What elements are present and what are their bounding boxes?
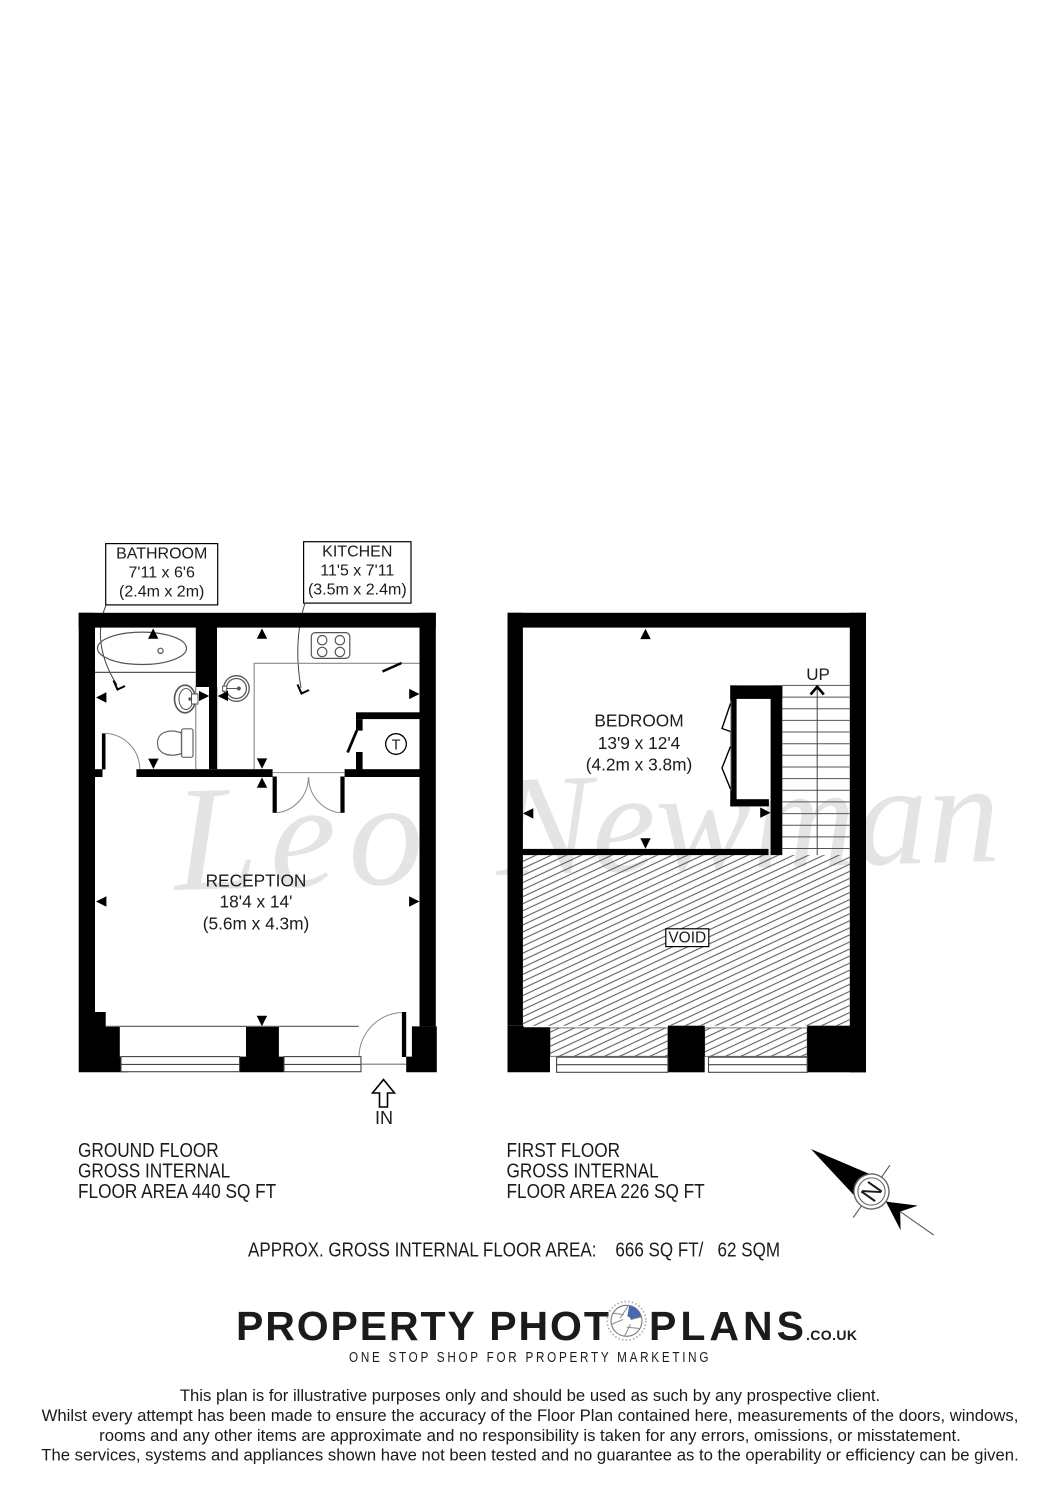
svg-text:IN: IN [375,1108,393,1128]
svg-text:PROPERTY PHOT: PROPERTY PHOT [236,1303,611,1349]
svg-text:UP: UP [806,665,830,684]
svg-text:The services, systems and appl: The services, systems and appliances sho… [41,1446,1018,1465]
svg-text:PLANS: PLANS [649,1303,808,1349]
svg-text:FLOOR AREA 226 SQ FT: FLOOR AREA 226 SQ FT [507,1180,705,1202]
svg-text:VOID: VOID [668,930,706,947]
svg-text:BATHROOM: BATHROOM [116,546,207,563]
svg-text:RECEPTION: RECEPTION [206,871,307,891]
svg-text:FIRST FLOOR: FIRST FLOOR [507,1139,621,1161]
svg-text:7'11 x 6'6: 7'11 x 6'6 [129,565,195,582]
svg-text:APPROX. GROSS INTERNAL FLOOR A: APPROX. GROSS INTERNAL FLOOR AREA: 666 S… [248,1238,780,1261]
svg-text:GROSS INTERNAL: GROSS INTERNAL [78,1159,230,1181]
svg-text:GROUND FLOOR: GROUND FLOOR [78,1139,219,1161]
svg-text:(2.4m x 2m): (2.4m x 2m) [119,584,204,601]
svg-text:(4.2m x 3.8m): (4.2m x 3.8m) [586,755,693,775]
svg-text:(5.6m x 4.3m): (5.6m x 4.3m) [203,913,310,933]
svg-text:(3.5m x 2.4m): (3.5m x 2.4m) [308,582,407,599]
svg-text:.CO.UK: .CO.UK [806,1327,857,1343]
svg-text:GROSS INTERNAL: GROSS INTERNAL [507,1159,659,1181]
svg-text:T: T [392,737,401,753]
svg-text:BEDROOM: BEDROOM [594,711,683,731]
svg-text:KITCHEN: KITCHEN [322,544,392,561]
svg-text:FLOOR AREA 440 SQ FT: FLOOR AREA 440 SQ FT [78,1180,276,1202]
svg-text:rooms and any other items are: rooms and any other items are approximat… [99,1426,961,1445]
svg-text:Whilst every attempt has been: Whilst every attempt has been made to en… [42,1406,1019,1425]
svg-text:13'9 x 12'4: 13'9 x 12'4 [598,733,681,753]
svg-text:11'5 x 7'11: 11'5 x 7'11 [320,563,394,580]
svg-text:18'4 x 14': 18'4 x 14' [220,891,293,911]
svg-text:This plan is for illustrative: This plan is for illustrative purposes o… [180,1386,880,1405]
svg-text:ONE STOP SHOP FOR PROPERTY MAR: ONE STOP SHOP FOR PROPERTY MARKETING [349,1349,711,1366]
